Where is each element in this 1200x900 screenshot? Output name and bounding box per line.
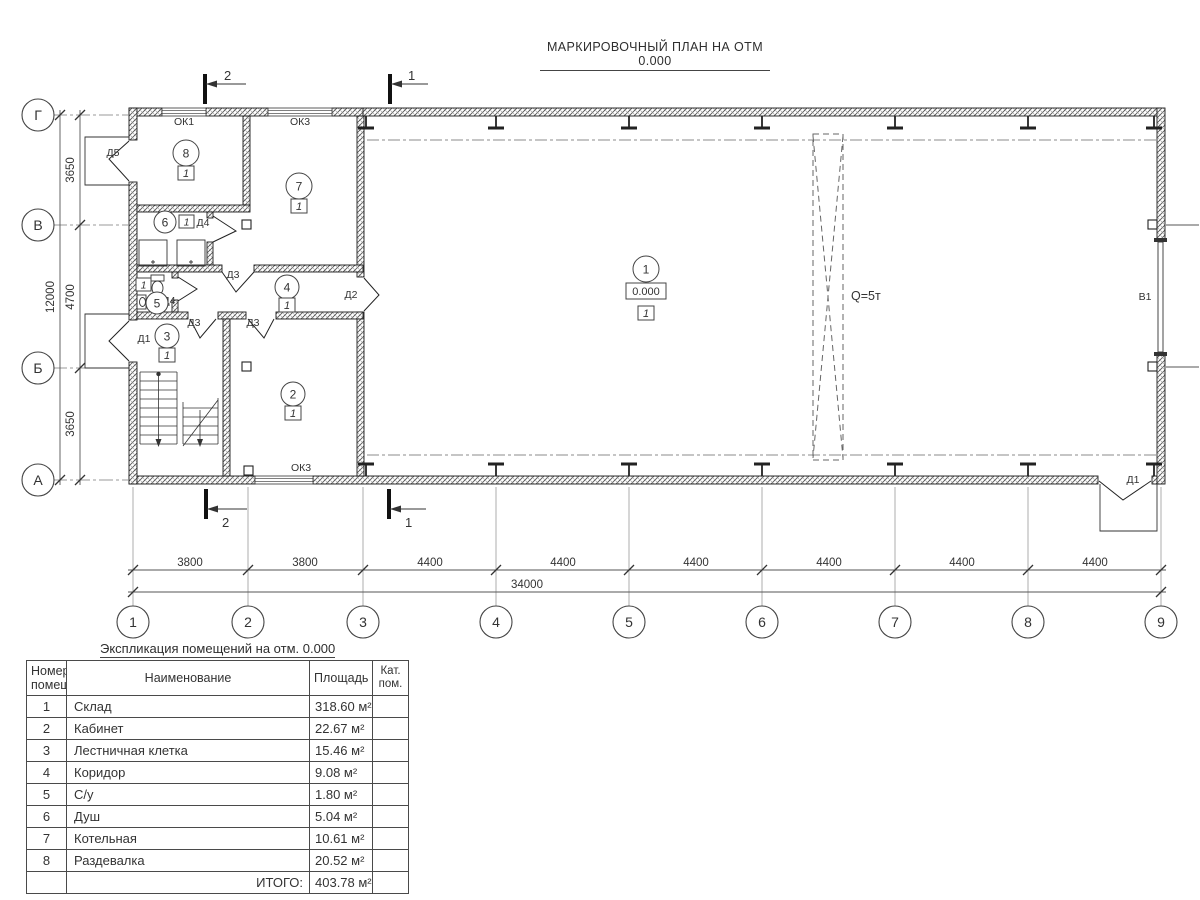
svg-text:4: 4 (284, 281, 291, 295)
svg-text:7: 7 (296, 180, 303, 194)
dim-bay-1: 3800 (177, 557, 203, 569)
elevation-mark: 0.000 (632, 286, 660, 298)
svg-text:8: 8 (183, 147, 190, 161)
cell-num: 6 (27, 806, 67, 828)
dim-bay-8: 4400 (1082, 557, 1108, 569)
crane-rails (367, 140, 1157, 455)
floor-plan: 3800 3800 4400 4400 4400 4400 4400 4400 … (0, 0, 1200, 660)
door-label-d1-left: Д1 (138, 333, 151, 345)
crane: Q=5т (367, 134, 1157, 460)
crane-capacity-label: Q=5т (851, 289, 881, 303)
cell-num: 8 (27, 850, 67, 872)
cell-cat (373, 740, 409, 762)
door-label-d4-shower: Д4 (197, 217, 210, 229)
cell-name: Кабинет (67, 718, 310, 740)
cell-name: Коридор (67, 762, 310, 784)
cell-cat (373, 784, 409, 806)
porch-bottom-right (1100, 484, 1157, 531)
room-marks: 1 0.000 1 2 1 3 1 4 1 5 1 6 1 (136, 140, 666, 420)
svg-text:1: 1 (290, 408, 296, 420)
gate-label-v1: В1 (1139, 291, 1152, 303)
cell-num: 3 (27, 740, 67, 762)
svg-text:2: 2 (224, 68, 231, 83)
total-area: 403.78 м² (310, 872, 373, 894)
cell-name: С/у (67, 784, 310, 806)
dim-total-bottom: 34000 (511, 579, 543, 591)
section-mark-2-bottom: 2 (206, 489, 247, 530)
svg-text:6: 6 (162, 216, 169, 230)
cell-num (27, 872, 67, 894)
table-row: 1Склад318.60 м² (27, 696, 409, 718)
room-mark-1: 1 0.000 1 (626, 256, 666, 320)
dim-left-3: 3650 (65, 411, 77, 437)
table-row: 8Раздевалка20.52 м² (27, 850, 409, 872)
cell-area: 318.60 м² (310, 696, 373, 718)
cell-name: Раздевалка (67, 850, 310, 872)
dim-bay-6: 4400 (816, 557, 842, 569)
cell-area: 9.08 м² (310, 762, 373, 784)
svg-text:5: 5 (154, 297, 161, 311)
svg-text:1: 1 (141, 280, 147, 292)
explication-table: Номерпомещ. Наименование Площадь Кат.пом… (26, 660, 409, 894)
window-ok3-top (268, 108, 332, 116)
svg-text:3: 3 (164, 330, 171, 344)
table-title: Экспликация помещений на отм. 0.000 (100, 641, 335, 658)
door-label-d3-office: Д3 (247, 317, 260, 329)
axis-label-9: 9 (1157, 614, 1165, 630)
section-mark-1-bottom: 1 (389, 489, 426, 530)
section-mark-1-top: 1 (390, 68, 428, 104)
cell-cat (373, 850, 409, 872)
room-mark-2: 2 1 (281, 382, 305, 420)
header-name: Наименование (67, 661, 310, 696)
dim-left-2: 4700 (65, 284, 77, 310)
axis-label-2: 2 (244, 614, 252, 630)
door-leaf-d2 (364, 278, 379, 311)
axis-label-a: А (33, 472, 43, 488)
dim-bay-4: 4400 (550, 557, 576, 569)
svg-text:1: 1 (164, 350, 170, 362)
dim-bay-5: 4400 (683, 557, 709, 569)
drawing-sheet: МАРКИРОВОЧНЫЙ ПЛАН НА ОТМ 0.000 3800 380… (0, 0, 1200, 900)
cell-cat (373, 718, 409, 740)
table-row: 5С/у1.80 м² (27, 784, 409, 806)
svg-text:1: 1 (284, 300, 290, 312)
steel-column-stems (366, 116, 1154, 476)
cell-area: 1.80 м² (310, 784, 373, 806)
door-leaf-d4-shower (213, 216, 236, 242)
svg-text:2: 2 (222, 515, 229, 530)
total-label: ИТОГО: (67, 872, 310, 894)
cell-name: Котельная (67, 828, 310, 850)
axis-label-7: 7 (891, 614, 899, 630)
axis-label-6: 6 (758, 614, 766, 630)
window-ok1 (162, 108, 206, 116)
table-row: 2Кабинет22.67 м² (27, 718, 409, 740)
dim-bay-7: 4400 (949, 557, 975, 569)
door-leaf-d4-wc (178, 277, 197, 301)
cell-num: 2 (27, 718, 67, 740)
grid-lines (53, 115, 1161, 606)
cell-cat (373, 806, 409, 828)
gate-v1: В1 (1139, 238, 1167, 356)
cell-num: 1 (27, 696, 67, 718)
cell-num: 5 (27, 784, 67, 806)
dim-bay-2: 3800 (292, 557, 318, 569)
door-label-d1-right: Д1 (1127, 474, 1140, 486)
cell-area: 20.52 м² (310, 850, 373, 872)
section-mark-2-top: 2 (205, 68, 246, 104)
cell-area: 10.61 м² (310, 828, 373, 850)
svg-text:1: 1 (643, 308, 649, 320)
cell-cat (373, 762, 409, 784)
door-label-d2: Д2 (345, 289, 358, 301)
svg-text:1: 1 (296, 201, 302, 213)
cell-name: Лестничная клетка (67, 740, 310, 762)
header-area: Площадь (310, 661, 373, 696)
header-number: Номерпомещ. (27, 661, 67, 696)
door-leaf-d1-right (1099, 481, 1151, 500)
table-row: 7Котельная10.61 м² (27, 828, 409, 850)
axis-label-4: 4 (492, 614, 500, 630)
window-label-ok3-bottom: ОК3 (291, 462, 311, 474)
window-label-ok1: ОК1 (174, 116, 194, 128)
svg-text:2: 2 (290, 388, 297, 402)
svg-text:1: 1 (408, 68, 415, 83)
dim-total-left: 12000 (45, 281, 57, 313)
columns (242, 116, 1199, 476)
cell-area: 22.67 м² (310, 718, 373, 740)
door-labels: Д5 Д1 Д3 Д3 Д3 Д4 Д4 Д2 Д1 (107, 147, 1140, 486)
crane-cross (813, 136, 843, 458)
window-ok3-bottom (255, 476, 313, 484)
cell-name: Душ (67, 806, 310, 828)
table-row: 6Душ5.04 м² (27, 806, 409, 828)
cell-cat (373, 696, 409, 718)
axis-label-8: 8 (1024, 614, 1032, 630)
svg-text:1: 1 (183, 168, 189, 180)
dim-left-1: 3650 (65, 157, 77, 183)
cell-area: 5.04 м² (310, 806, 373, 828)
axis-label-b: Б (33, 360, 42, 376)
table-row: 3Лестничная клетка15.46 м² (27, 740, 409, 762)
door-label-d3-stair: Д3 (188, 317, 201, 329)
room-mark-8: 8 1 (173, 140, 199, 180)
room-mark-6: 6 1 (154, 211, 194, 233)
shower-stall-icon (177, 240, 205, 266)
stairs (140, 372, 218, 447)
table-row: 4Коридор9.08 м² (27, 762, 409, 784)
room-mark-7: 7 1 (286, 173, 312, 213)
porch-top-left (85, 137, 129, 185)
porch-mid-left (85, 314, 129, 368)
room-mark-4: 4 1 (275, 275, 299, 312)
cell-cat (373, 872, 409, 894)
section-marks: 2 1 2 1 (205, 68, 428, 530)
door-leaf-d1-left (109, 321, 129, 361)
dim-bay-3: 4400 (417, 557, 443, 569)
doors (109, 141, 1151, 500)
svg-text:1: 1 (643, 263, 650, 277)
table-header-row: Номерпомещ. Наименование Площадь Кат.пом… (27, 661, 409, 696)
cell-num: 7 (27, 828, 67, 850)
window-label-ok3-top: ОК3 (290, 116, 310, 128)
cell-area: 15.46 м² (310, 740, 373, 762)
axis-bubbles-bottom: 1 2 3 4 5 6 7 8 9 (117, 606, 1177, 638)
steel-column-flanges (358, 128, 1162, 464)
axis-label-g: Г (34, 107, 42, 123)
door-label-d5: Д5 (107, 147, 120, 159)
cell-num: 4 (27, 762, 67, 784)
axis-label-3: 3 (359, 614, 367, 630)
room-mark-3: 3 1 (155, 324, 179, 362)
table-total-row: ИТОГО:403.78 м² (27, 872, 409, 894)
svg-text:1: 1 (405, 515, 412, 530)
axis-label-1: 1 (129, 614, 137, 630)
cell-name: Склад (67, 696, 310, 718)
sink-icon (137, 295, 146, 309)
axis-label-5: 5 (625, 614, 633, 630)
header-category: Кат.пом. (373, 661, 409, 696)
door-label-d3-corridor: Д3 (227, 269, 240, 281)
axis-label-v: В (33, 217, 42, 233)
cell-cat (373, 828, 409, 850)
svg-text:1: 1 (184, 217, 190, 229)
shower-stall-icon (139, 240, 167, 266)
